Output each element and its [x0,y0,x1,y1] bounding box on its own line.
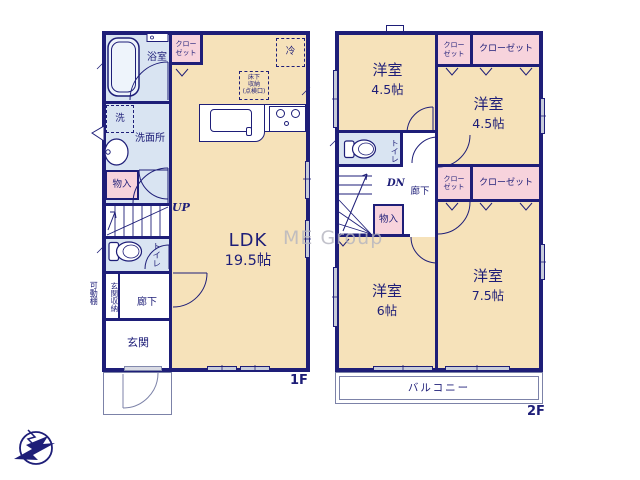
room-bl-size: 6帖 [339,304,435,318]
balcony-inner: バルコニー [339,376,539,400]
watermark: ME Group [283,227,383,249]
closet-label-line1: クロー [444,175,465,183]
stairs-down-label: DN [387,178,405,190]
entrance-label: 玄関 [122,337,154,350]
room-tr-name: 洋室 [438,96,539,113]
toilet-label-2f: トイレ [390,137,399,164]
toilet-label-1f: トイレ [150,240,160,270]
stove-burner [276,109,285,118]
balcony-label: バルコニー [408,382,470,394]
storage-box-1f: 物入 [105,170,139,200]
washroom-label: 洗面所 [127,133,173,145]
underfloor-storage: 床下 収納 (点検口) [239,71,269,100]
floor1-label: 1F [290,374,308,389]
closet-2f-wide-mid: クローゼット [473,167,539,199]
stove-knob [284,121,289,126]
closet-label-line2: ゼット [444,50,465,58]
ldk-size-label: 19.5帖 [200,253,296,270]
wall [400,133,403,164]
closet-2f-small-top: クロー ゼット [438,35,470,64]
room-tl-name: 洋室 [339,62,436,79]
room-bl-name: 洋室 [339,283,435,300]
wall [435,199,539,202]
closet-2f-wide-top: クローゼット [473,35,539,64]
fridge-label: 冷 [286,47,296,58]
kitchen-stove [269,106,306,132]
movable-shelf-label: 可動棚 [89,281,98,305]
fridge-space: 冷 [276,38,305,67]
wall [435,64,539,67]
washer-label: 洗 [115,114,125,125]
window [445,366,510,371]
window [207,366,237,371]
closet-2f-small-mid: クロー ゼット [438,167,470,199]
hallway-label-1f: 廊下 [131,297,163,309]
floor-plan-canvas: クロー ゼット 物入 冷 床下 収納 (点検口) 洗 [0,0,640,480]
window [540,98,545,134]
wall [339,164,403,167]
washer-space: 洗 [106,105,134,133]
closet-1f-label-line1: クロー [176,40,197,48]
entrance-porch [103,372,172,415]
hallway-label-2f: 廊下 [406,187,434,198]
floor2-label: 2F [527,405,545,420]
storage-1f-label: 物入 [112,180,131,191]
storage-2f-label: 物入 [379,215,398,226]
north-compass-icon [14,430,55,464]
closet-label-line2: ゼット [444,183,465,191]
stairs-area-1f [106,206,169,236]
room-br-size: 7.5帖 [437,289,539,303]
roof-vent [386,25,404,32]
room-br-name: 洋室 [437,268,539,285]
closet-label-line1: クロー [444,41,465,49]
window [373,366,433,371]
window [333,267,338,327]
ldk-label: LDK [200,231,296,252]
bathroom-label: 浴室 [134,52,180,64]
stairs-up-label: UP [172,202,190,215]
room-tr-size: 4.5帖 [438,117,539,131]
window [333,70,338,128]
closet-label: クローゼット [479,178,533,188]
closet-label: クローゼット [479,44,533,54]
underfloor-label-3: (点検口) [243,89,266,96]
window [240,366,270,371]
window [305,161,310,199]
entrance-door-opening [124,366,162,371]
kitchen-faucet [246,127,252,136]
entrance-storage-label: 玄関収納 [107,276,120,317]
bathroom-area [106,35,169,101]
wall [339,130,438,133]
room-tl-size: 4.5帖 [339,83,436,97]
window [540,244,545,280]
stove-burner [291,109,300,118]
